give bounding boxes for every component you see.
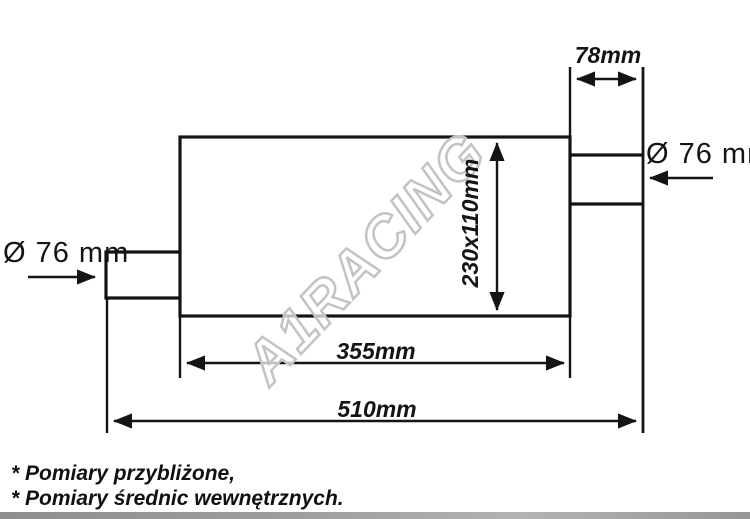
scan-edge-strip [0,512,750,519]
note-approximate-measurements: * Pomiary przybliżone, [11,462,235,486]
label-body-length: 355mm [314,338,438,365]
label-body-cross-section: 230x110mm [457,138,485,308]
outlet-pipe [570,155,642,204]
label-inlet-diameter: Ø 76 mm [3,237,129,270]
label-total-length: 510mm [315,396,439,423]
muffler-dimension-diagram: A1RACING 78mm Ø 76 mm Ø 76 mm 230x110mm … [0,0,750,519]
label-outlet-pipe-length: 78mm [556,42,660,69]
label-outlet-diameter: Ø 76 mm [646,138,750,171]
note-inner-diameter-measurements: * Pomiary średnic wewnętrznych. [11,487,344,511]
muffler-body-outline [180,137,570,316]
